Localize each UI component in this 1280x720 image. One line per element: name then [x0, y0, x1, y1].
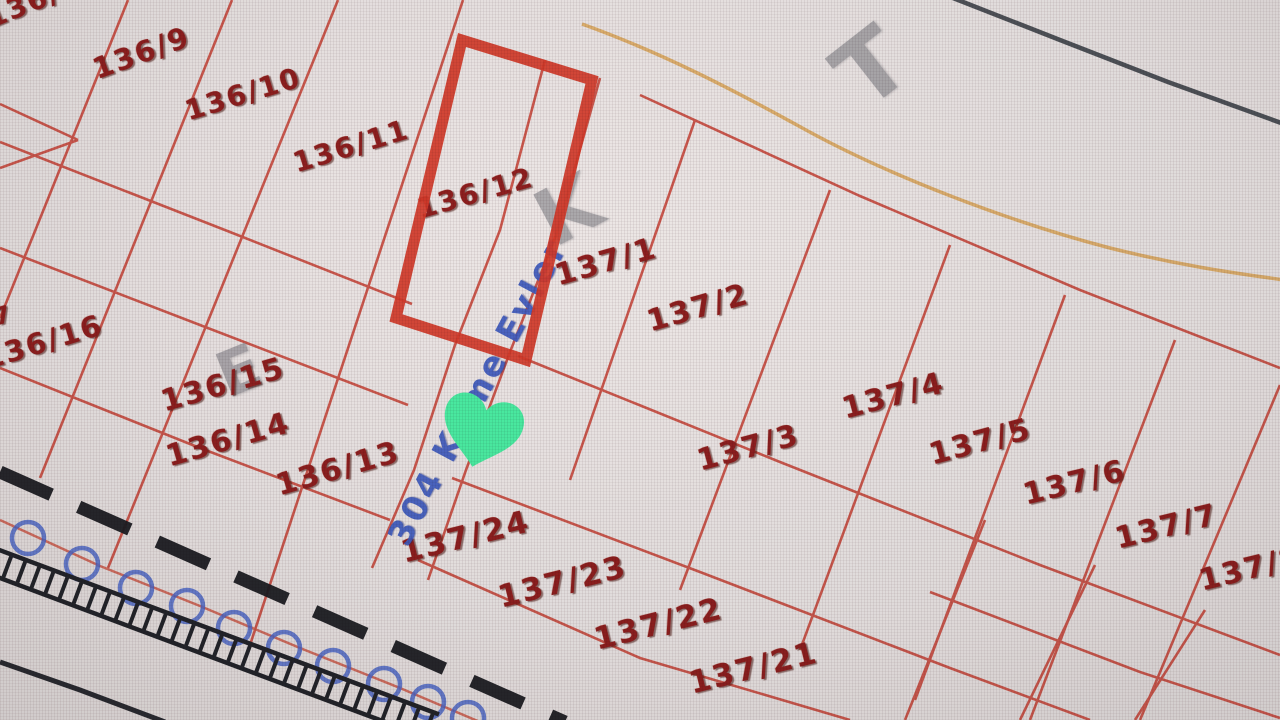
heart-marker: [434, 388, 529, 476]
selected-parcel-outline[interactable]: [396, 40, 592, 360]
map-screen-photo: TKE 136/8136/9136/10136/11136/12137/1137…: [0, 0, 1280, 720]
map-overlay-layer: [0, 0, 1280, 720]
